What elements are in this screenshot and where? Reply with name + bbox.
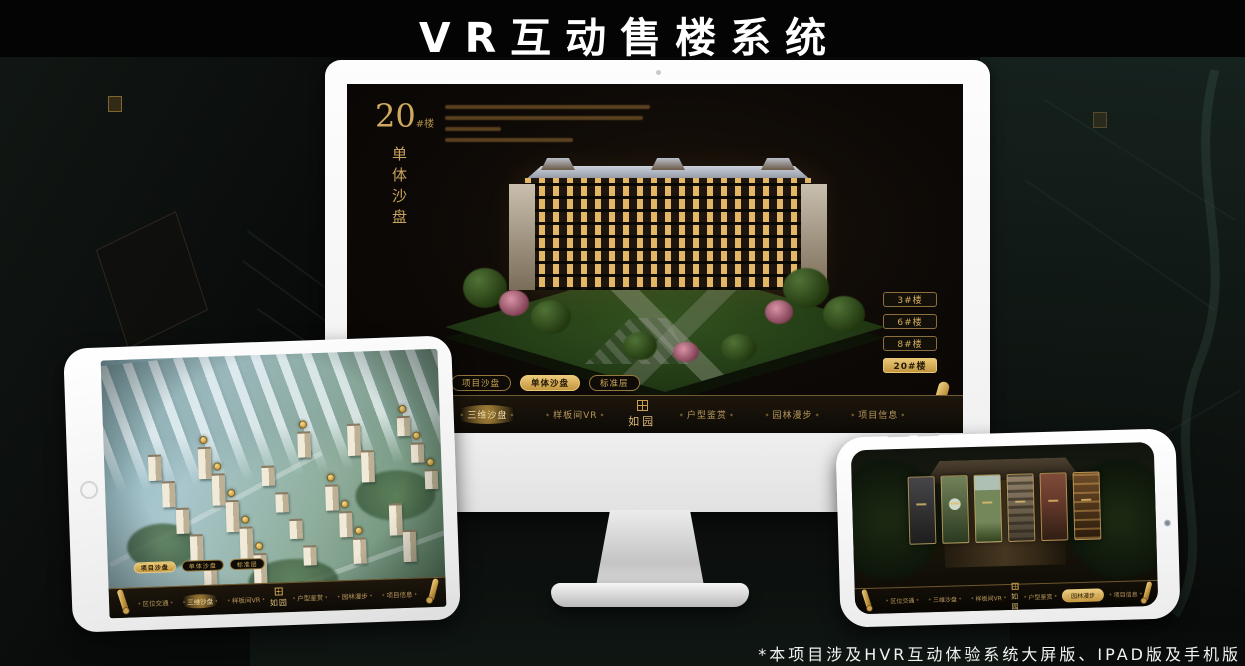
sandbox-subtabs: 项目沙盘 单体沙盘 标准层 xyxy=(451,375,640,391)
model-dormer xyxy=(541,158,575,170)
brand-logo-text: 如园 xyxy=(628,413,656,429)
description-text-lines xyxy=(445,98,655,149)
tree-pink xyxy=(499,290,529,316)
phone-volume-button[interactable] xyxy=(887,434,909,438)
building-button-20[interactable]: 20#楼 xyxy=(883,358,937,373)
nav-item-3d-sandbox[interactable]: 三维沙盘 xyxy=(452,405,522,424)
model-dormer xyxy=(761,158,795,170)
model-dormer xyxy=(651,158,685,170)
ipad-mockup: 项目沙盘 单体沙盘 标准层 区位交通 三维沙盘 样板间VR 如园 户型鉴赏 园林… xyxy=(63,335,461,632)
scene-card[interactable] xyxy=(907,476,936,545)
ipad-brand-logo-text: 如园 xyxy=(270,597,288,609)
block-label: 20#楼 xyxy=(375,100,434,132)
tab-standard-floor[interactable]: 标准层 xyxy=(589,375,640,391)
ipad-tab-project-sandbox[interactable]: 项目沙盘 xyxy=(134,561,176,573)
phone-nav-item-garden-walk[interactable]: 园林漫步 xyxy=(1062,588,1105,602)
phone-mockup: 区位交通 三维沙盘 样板间VR 如园 户型鉴赏 园林漫步 项目信息 xyxy=(835,428,1180,627)
tree xyxy=(531,300,571,334)
phone-nav-item-showroom-vr[interactable]: 样板间VR xyxy=(966,591,1011,605)
ipad-nav-item-3d-sandbox[interactable]: 三维沙盘 xyxy=(178,593,223,609)
phone-nav-item-3d-sandbox[interactable]: 三维沙盘 xyxy=(923,592,966,606)
ipad-nav-item-floorplans[interactable]: 户型鉴赏 xyxy=(288,589,333,605)
brand-logo: 如园 xyxy=(628,400,656,429)
block-suffix: #楼 xyxy=(416,119,434,130)
ipad-nav-item-project-info[interactable]: 项目信息 xyxy=(377,586,422,602)
scene-card[interactable] xyxy=(1072,471,1101,540)
seal-icon xyxy=(274,587,282,595)
phone-nav-item-location[interactable]: 区位交通 xyxy=(881,593,924,607)
building-3d-model[interactable] xyxy=(435,150,895,400)
tab-project-sandbox[interactable]: 项目沙盘 xyxy=(451,375,511,391)
block-number: 20 xyxy=(375,97,416,135)
phone-volume-button[interactable] xyxy=(917,433,939,437)
tree xyxy=(823,296,865,332)
background-gold-logo xyxy=(1093,112,1107,128)
phone-nav-item-floorplans[interactable]: 户型鉴赏 xyxy=(1019,590,1062,604)
scene-card[interactable] xyxy=(1039,472,1068,541)
ipad-nav-item-showroom-vr[interactable]: 样板间VR xyxy=(222,591,270,607)
seal-icon xyxy=(637,400,648,411)
tab-single-sandbox[interactable]: 单体沙盘 xyxy=(520,375,580,391)
building-button-6[interactable]: 6#楼 xyxy=(883,314,937,329)
section-title-vertical: 单体沙盘 xyxy=(389,146,410,230)
ipad-nav-item-garden-walk[interactable]: 园林漫步 xyxy=(332,588,377,604)
ipad-home-button[interactable] xyxy=(80,481,99,500)
ipad-tab-single-sandbox[interactable]: 单体沙盘 xyxy=(182,559,224,571)
footnote-text: *本项目涉及HVR互动体验系统大屏版、IPAD版及手机版 xyxy=(758,641,1241,665)
scene-card[interactable] xyxy=(940,475,969,544)
scene-card[interactable] xyxy=(1006,473,1035,542)
seal-icon xyxy=(1011,583,1018,590)
phone-camera-dot xyxy=(1164,519,1171,526)
ipad-aerial-view: 项目沙盘 单体沙盘 标准层 区位交通 三维沙盘 样板间VR 如园 户型鉴赏 园林… xyxy=(101,349,447,619)
scroll-menu-icon[interactable] xyxy=(423,577,442,606)
building-button-3[interactable]: 3#楼 xyxy=(883,292,937,307)
monitor-stand-neck xyxy=(596,510,704,586)
ipad-brand-logo: 如园 xyxy=(269,587,288,609)
page-title: VR互动售楼系统 xyxy=(0,4,1245,64)
scroll-menu-icon[interactable] xyxy=(113,588,132,617)
tree-pink xyxy=(765,300,793,324)
tree-pink xyxy=(673,342,699,362)
model-wing xyxy=(509,184,535,290)
webcam-dot xyxy=(656,70,661,75)
tree xyxy=(623,332,657,360)
scroll-menu-icon[interactable] xyxy=(1139,580,1156,605)
nav-item-garden-walk[interactable]: 园林漫步 xyxy=(757,405,827,424)
scene-gallery xyxy=(907,471,1101,544)
scene-card[interactable] xyxy=(973,474,1002,543)
ipad-tab-standard-floor[interactable]: 标准层 xyxy=(230,558,265,570)
nav-item-project-info[interactable]: 项目信息 xyxy=(843,405,913,424)
phone-screen: 区位交通 三维沙盘 样板间VR 如园 户型鉴赏 园林漫步 项目信息 xyxy=(851,442,1158,614)
model-facade-windows xyxy=(523,178,813,290)
tree xyxy=(721,334,757,362)
phone-nav-bar: 区位交通 三维沙盘 样板间VR 如园 户型鉴赏 园林漫步 项目信息 xyxy=(855,580,1159,614)
scroll-menu-icon[interactable] xyxy=(858,588,875,613)
model-building xyxy=(523,178,813,290)
promo-banner: VR互动售楼系统 20#楼 单体沙盘 xyxy=(0,0,1245,666)
monitor-stand-foot xyxy=(551,583,749,607)
background-gold-logo xyxy=(108,96,122,112)
nav-item-floorplans[interactable]: 户型鉴赏 xyxy=(672,405,742,424)
nav-item-showroom-vr[interactable]: 样板间VR xyxy=(538,405,613,424)
building-button-group: 3#楼 6#楼 8#楼 20#楼 xyxy=(883,292,937,373)
tree xyxy=(783,268,829,308)
building-button-8[interactable]: 8#楼 xyxy=(883,336,937,351)
ipad-nav-item-location[interactable]: 区位交通 xyxy=(133,595,178,611)
